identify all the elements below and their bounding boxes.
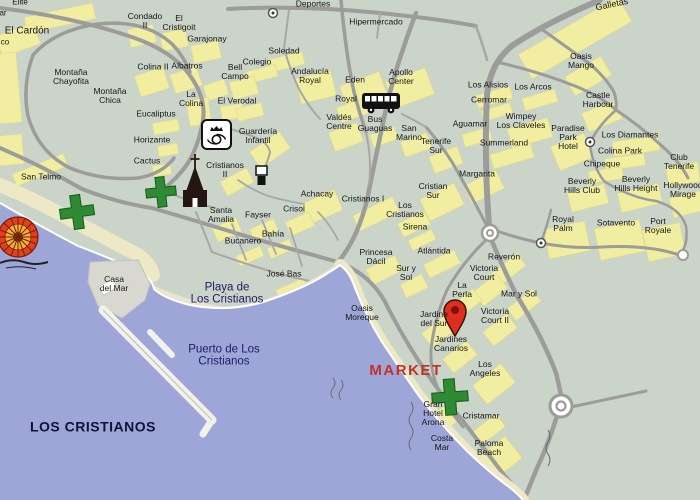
label-oasis-moreque: Oasis Moreque: [345, 304, 379, 322]
label-los-diamantes: Los Diamantes: [602, 130, 659, 139]
label-jardines-canarios: Jardines Canarios: [434, 335, 468, 353]
label-gran-hotel-arona: Gran Hotel Arona: [422, 400, 445, 428]
label-victoria-court-ii: Victoria Court II: [481, 307, 509, 325]
label-cristianos-ii: Cristianos II: [206, 161, 244, 179]
label-summerland: Summerland: [480, 138, 528, 147]
label-club-tenerife: Club Tenerife: [664, 153, 694, 171]
label-san-marino: San Marino: [396, 124, 422, 142]
labels-layer: ElitearcoEl CardónCondado IIEl Cristigoi…: [0, 0, 700, 500]
label-guarderia-infantil: Guardería Infantil: [239, 127, 277, 145]
label-cerromar: Cerromar: [471, 95, 507, 104]
label-san-telmo: San Telmo: [21, 172, 61, 181]
label-los-cristianos-title: LOS CRISTIANOS: [30, 419, 156, 434]
label-atlantida: Atlántida: [417, 246, 450, 255]
label-la-perla: La Perla: [452, 281, 472, 299]
tourist-map-los-cristianos: ElitearcoEl CardónCondado IIEl Cristigoi…: [0, 0, 700, 500]
label-valdes-centre: Valdés Centre: [326, 113, 352, 131]
label-la-colina: La Colina: [179, 90, 203, 108]
label-casa-del-mar: Casa del Mar: [100, 275, 128, 293]
label-colegio: Colegio: [243, 57, 272, 66]
label-princesa-dacil: Princesa Dácil: [359, 248, 392, 266]
label-fayser: Fayser: [245, 210, 271, 219]
label-el-verodal: El Verodal: [218, 96, 257, 105]
label-cactus: Cactus: [134, 156, 160, 165]
label-hipermercado: Hipermercado: [349, 17, 402, 26]
label-royal: Royal: [335, 94, 357, 103]
label-condado-ii: Condado II: [128, 12, 163, 30]
label-castle-harbour: Castle Harbour: [583, 91, 614, 109]
label-elite: Elite: [12, 0, 28, 7]
label-eucaliptus: Eucaliptus: [136, 109, 175, 118]
label-el-cardon: El Cardón: [5, 27, 49, 38]
label-soledad: Soledad: [268, 46, 299, 55]
label-bell-campo: Bell Campo: [221, 63, 248, 81]
label-edge-ar: ar: [0, 10, 7, 19]
label-horizante: Horizante: [134, 135, 170, 144]
label-albatros: Albatros: [171, 61, 202, 70]
label-market: MARKET: [369, 363, 442, 379]
label-victoria-court: Victoria Court: [470, 264, 498, 282]
label-los-arcos: Los Arcos: [514, 82, 551, 91]
label-beverly-hills-club: Beverly Hills Club: [564, 177, 600, 195]
label-crisol: Crisol: [283, 204, 305, 213]
label-margarita: Margarita: [459, 169, 495, 178]
label-jardine-del-sur: Jardine del Sur: [420, 310, 448, 328]
label-puerto-de-los-cristianos: Puerto de Los Cristianos: [188, 344, 260, 369]
label-paradise-park-hotel: Paradise Park Hotel: [551, 124, 585, 152]
label-sirena: Sirena: [403, 222, 428, 231]
label-playa-de-los-cristianos: Playa de Los Cristianos: [191, 282, 264, 307]
label-andalucia-royal: Andalucía Royal: [291, 67, 329, 85]
label-port-royale: Port Royale: [645, 217, 671, 235]
label-los-angeles: Los Angeles: [470, 360, 501, 378]
label-cristamar: Cristamar: [463, 411, 500, 420]
label-eden: Eden: [345, 75, 365, 84]
label-chipeque: Chipeque: [584, 159, 620, 168]
label-bus-guaguas: Bus Guaguas: [358, 115, 393, 133]
label-tenerife-sur: Tenerife Sur: [421, 137, 451, 155]
label-beverly-hills-height: Beverly Hills Height: [615, 175, 658, 193]
label-jose-bas: José Bas: [267, 269, 302, 278]
label-oasis-mango: Oasis Mango: [568, 52, 594, 70]
label-los-alisios: Los Alisios: [468, 80, 508, 89]
label-garajonay: Garajonay: [187, 34, 226, 43]
label-galletas: Galletas: [595, 0, 629, 13]
label-edge-co: co: [1, 39, 9, 48]
label-costa-mar: Costa Mar: [431, 434, 453, 452]
label-bucanero: Bucanero: [225, 236, 261, 245]
label-bahia: Bahía: [262, 229, 284, 238]
label-mar-y-sol: Mar y Sol: [501, 289, 537, 298]
label-hollywood-mirage: Hollywood Mirage: [663, 181, 700, 199]
label-colina-ii: Colina II: [137, 62, 168, 71]
label-reveron: Reverón: [488, 252, 520, 261]
label-cristianos-i: Cristianos I: [342, 194, 385, 203]
label-colina-park: Colina Park: [598, 146, 642, 155]
label-los-cristianos-block: Los Cristianos: [386, 201, 424, 219]
label-sotavento: Sotavento: [597, 218, 635, 227]
label-achacay: Achacay: [301, 189, 334, 198]
label-montana-chayofita: Montaña Chayofita: [53, 68, 89, 86]
label-apollo-center: Apollo Center: [388, 68, 414, 86]
label-deportes: Deportes: [296, 0, 331, 9]
label-cristian-sur: Cristian Sur: [419, 182, 448, 200]
label-aguamar: Aguamar: [453, 119, 488, 128]
label-wimpey-los-claveles: Wimpey Los Claveles: [497, 112, 546, 130]
label-sur-y-sol: Sur y Sol: [396, 264, 416, 282]
label-royal-palm: Royal Palm: [552, 215, 574, 233]
label-santa-amalia: Santa Amalia: [208, 206, 234, 224]
label-el-cristigoit: El Cristigoit: [162, 14, 195, 32]
label-paloma-beach: Paloma Beach: [475, 439, 504, 457]
label-montana-chica: Montaña Chica: [93, 87, 126, 105]
